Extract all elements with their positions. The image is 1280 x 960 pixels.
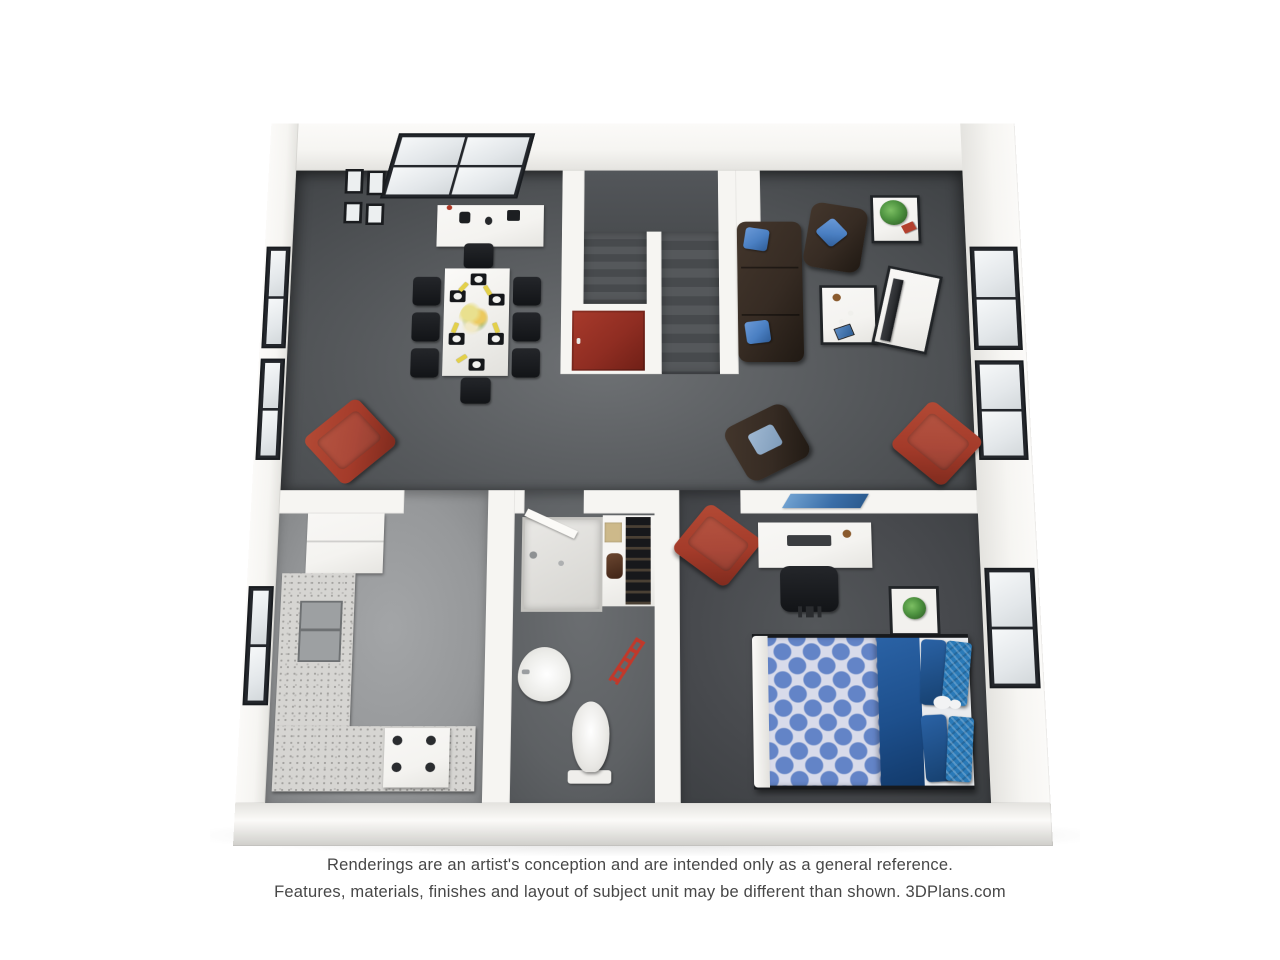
wall xyxy=(482,490,515,803)
window-pane xyxy=(248,647,266,701)
stair-landing xyxy=(584,171,718,232)
window-pane xyxy=(980,365,1022,409)
window-pane xyxy=(260,410,277,455)
stair-treads xyxy=(661,232,720,375)
wall xyxy=(279,490,404,513)
window-pane xyxy=(263,363,280,408)
bed-runner xyxy=(877,638,925,786)
storage-box xyxy=(605,522,622,542)
disclaimer: Renderings are an artist's conception an… xyxy=(0,852,1280,906)
sofa-cushion-seam xyxy=(741,267,798,269)
dining-chair xyxy=(411,312,440,341)
disclaimer-line-2: Features, materials, finishes and layout… xyxy=(0,879,1280,906)
place-setting xyxy=(489,294,505,306)
picture-frame xyxy=(365,203,384,225)
toilet-tank xyxy=(568,770,612,783)
bag xyxy=(606,553,622,579)
office-chair xyxy=(780,566,839,612)
window-pane xyxy=(982,411,1024,455)
door-knob xyxy=(577,338,581,344)
window-pane xyxy=(992,629,1036,684)
plant xyxy=(879,200,907,225)
living-window xyxy=(975,360,1029,460)
floor-plan-scene xyxy=(233,34,1053,846)
dining-chair xyxy=(412,277,441,306)
bathroom-sink xyxy=(517,647,571,701)
dining-window xyxy=(261,247,290,349)
dining-chair xyxy=(410,348,439,377)
toilet xyxy=(572,702,610,773)
sofa-pillow xyxy=(743,227,770,252)
shower-drain xyxy=(558,561,564,566)
window-pane xyxy=(386,167,457,194)
sideboard xyxy=(436,205,544,247)
kitchen-sink-divider xyxy=(301,628,340,631)
window-pane xyxy=(251,591,269,644)
window-pane xyxy=(451,167,521,194)
place-setting xyxy=(488,333,504,345)
place-setting xyxy=(450,290,466,302)
nightstand-plant xyxy=(902,597,926,619)
place-setting xyxy=(468,359,484,371)
coffee-cup xyxy=(839,319,845,324)
dining-chair xyxy=(512,312,540,341)
wall-art xyxy=(782,494,869,508)
dining-chair xyxy=(511,348,540,377)
sofa-cushion-seam xyxy=(742,314,800,316)
window-pane xyxy=(394,137,464,164)
dining-chair xyxy=(464,243,494,268)
disclaimer-line-1: Renderings are an artist's conception an… xyxy=(0,852,1280,879)
shower-head xyxy=(529,551,537,558)
bed-pillow-white xyxy=(949,700,961,709)
window-pane xyxy=(989,572,1032,626)
wall xyxy=(654,490,680,803)
closet-shelf-contents xyxy=(626,517,651,604)
stair-treads xyxy=(583,232,646,304)
sofa-pillow xyxy=(744,320,771,345)
dining-window xyxy=(255,359,285,460)
bed-duvet xyxy=(768,638,882,786)
wall xyxy=(233,803,1053,846)
dining-chair xyxy=(460,378,491,404)
floor-plan-render xyxy=(233,124,1053,846)
skylight-window xyxy=(380,133,535,198)
bed-pillow-teal xyxy=(945,716,974,783)
desk-cup xyxy=(842,530,851,538)
kitchen-sink xyxy=(297,601,342,662)
sideboard-decor xyxy=(507,210,520,221)
window-pane xyxy=(977,299,1018,345)
refrigerator-seam xyxy=(307,541,384,543)
window-pane xyxy=(460,137,530,164)
window-pane xyxy=(269,251,286,296)
under-stair-door xyxy=(572,311,645,371)
window-pane xyxy=(266,298,283,344)
window-pane xyxy=(974,251,1015,297)
sideboard-decor xyxy=(459,212,470,224)
refrigerator xyxy=(305,513,384,573)
office-chair-base xyxy=(794,606,825,617)
place-setting xyxy=(449,333,465,345)
bedroom-window xyxy=(984,568,1040,688)
sink-faucet xyxy=(522,670,530,675)
coffee-cup xyxy=(832,294,841,302)
picture-frame xyxy=(366,171,385,196)
place-setting xyxy=(471,273,487,285)
picture-frame xyxy=(345,169,364,194)
coffee-cup xyxy=(848,311,854,316)
picture-frame xyxy=(343,202,362,224)
living-window xyxy=(970,247,1023,350)
dining-chair xyxy=(513,277,541,306)
keyboard xyxy=(787,535,831,546)
